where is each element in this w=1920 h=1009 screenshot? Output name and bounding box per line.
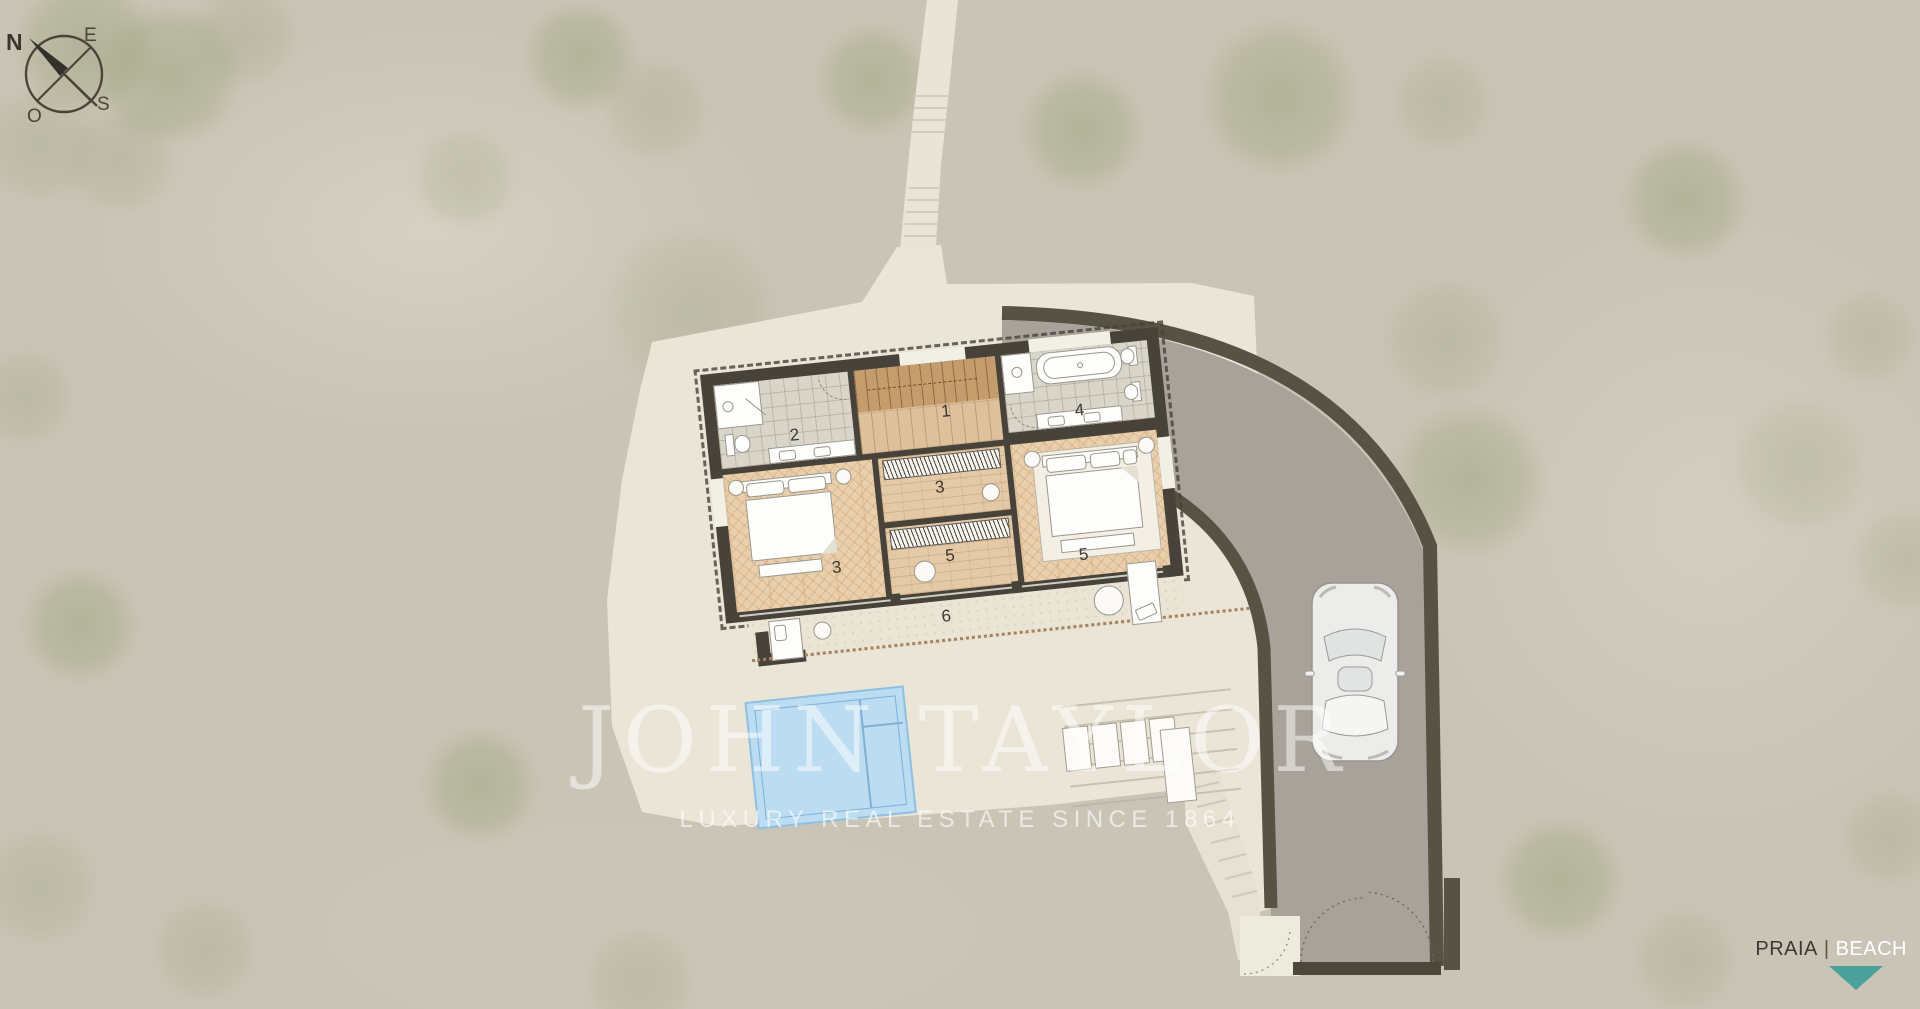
compass-east: E bbox=[84, 25, 97, 46]
pillow bbox=[1122, 449, 1137, 465]
chaise-lounge bbox=[768, 618, 804, 661]
room-label-terrace: 6 bbox=[941, 606, 953, 627]
driveway-wall-jog bbox=[1444, 878, 1460, 970]
compass-south: S bbox=[97, 94, 110, 115]
bed-mattress bbox=[745, 491, 837, 562]
site-plan-canvas: 1 2 4 3 5 3 5 6 JOHN TAYLOR LUXURY REAL … bbox=[0, 0, 1920, 1009]
lounger bbox=[1126, 560, 1162, 625]
sink bbox=[813, 446, 831, 458]
location-primary: PRAIA bbox=[1755, 938, 1818, 960]
compass-icon: N E S O bbox=[0, 10, 124, 134]
room-label-bedroom-right: 5 bbox=[1078, 544, 1090, 565]
watermark-brand: JOHN TAYLOR bbox=[4, 688, 1920, 793]
room-label-hall: 1 bbox=[940, 401, 952, 422]
room-label-dress-upper: 3 bbox=[934, 477, 946, 498]
room-label-bedroom-left: 3 bbox=[831, 557, 843, 578]
shower bbox=[1001, 352, 1035, 395]
building bbox=[700, 327, 1184, 624]
compass-north: N bbox=[6, 29, 23, 55]
compass-west: O bbox=[27, 106, 42, 127]
sink bbox=[778, 449, 796, 461]
location-switcher[interactable]: PRAIA|BEACH bbox=[1755, 938, 1907, 961]
room-label-bath-left: 2 bbox=[789, 425, 801, 446]
gate-landing bbox=[1240, 916, 1300, 976]
shower bbox=[713, 381, 763, 430]
sink bbox=[1047, 415, 1065, 427]
location-secondary: BEACH bbox=[1836, 938, 1907, 960]
room-label-dress-lower: 5 bbox=[944, 545, 956, 566]
watermark-tagline: LUXURY REAL ESTATE SINCE 1864 bbox=[0, 806, 1920, 834]
pillow bbox=[1089, 451, 1120, 469]
floor-plan: 1 2 4 3 5 3 5 6 bbox=[700, 327, 1222, 992]
location-divider: | bbox=[1818, 938, 1836, 960]
gate-bar bbox=[1293, 962, 1441, 975]
room-label-bath-right: 4 bbox=[1074, 400, 1086, 421]
bed-mattress bbox=[1045, 466, 1143, 537]
sink bbox=[1083, 411, 1101, 423]
dropdown-triangle-icon[interactable] bbox=[1829, 966, 1883, 990]
